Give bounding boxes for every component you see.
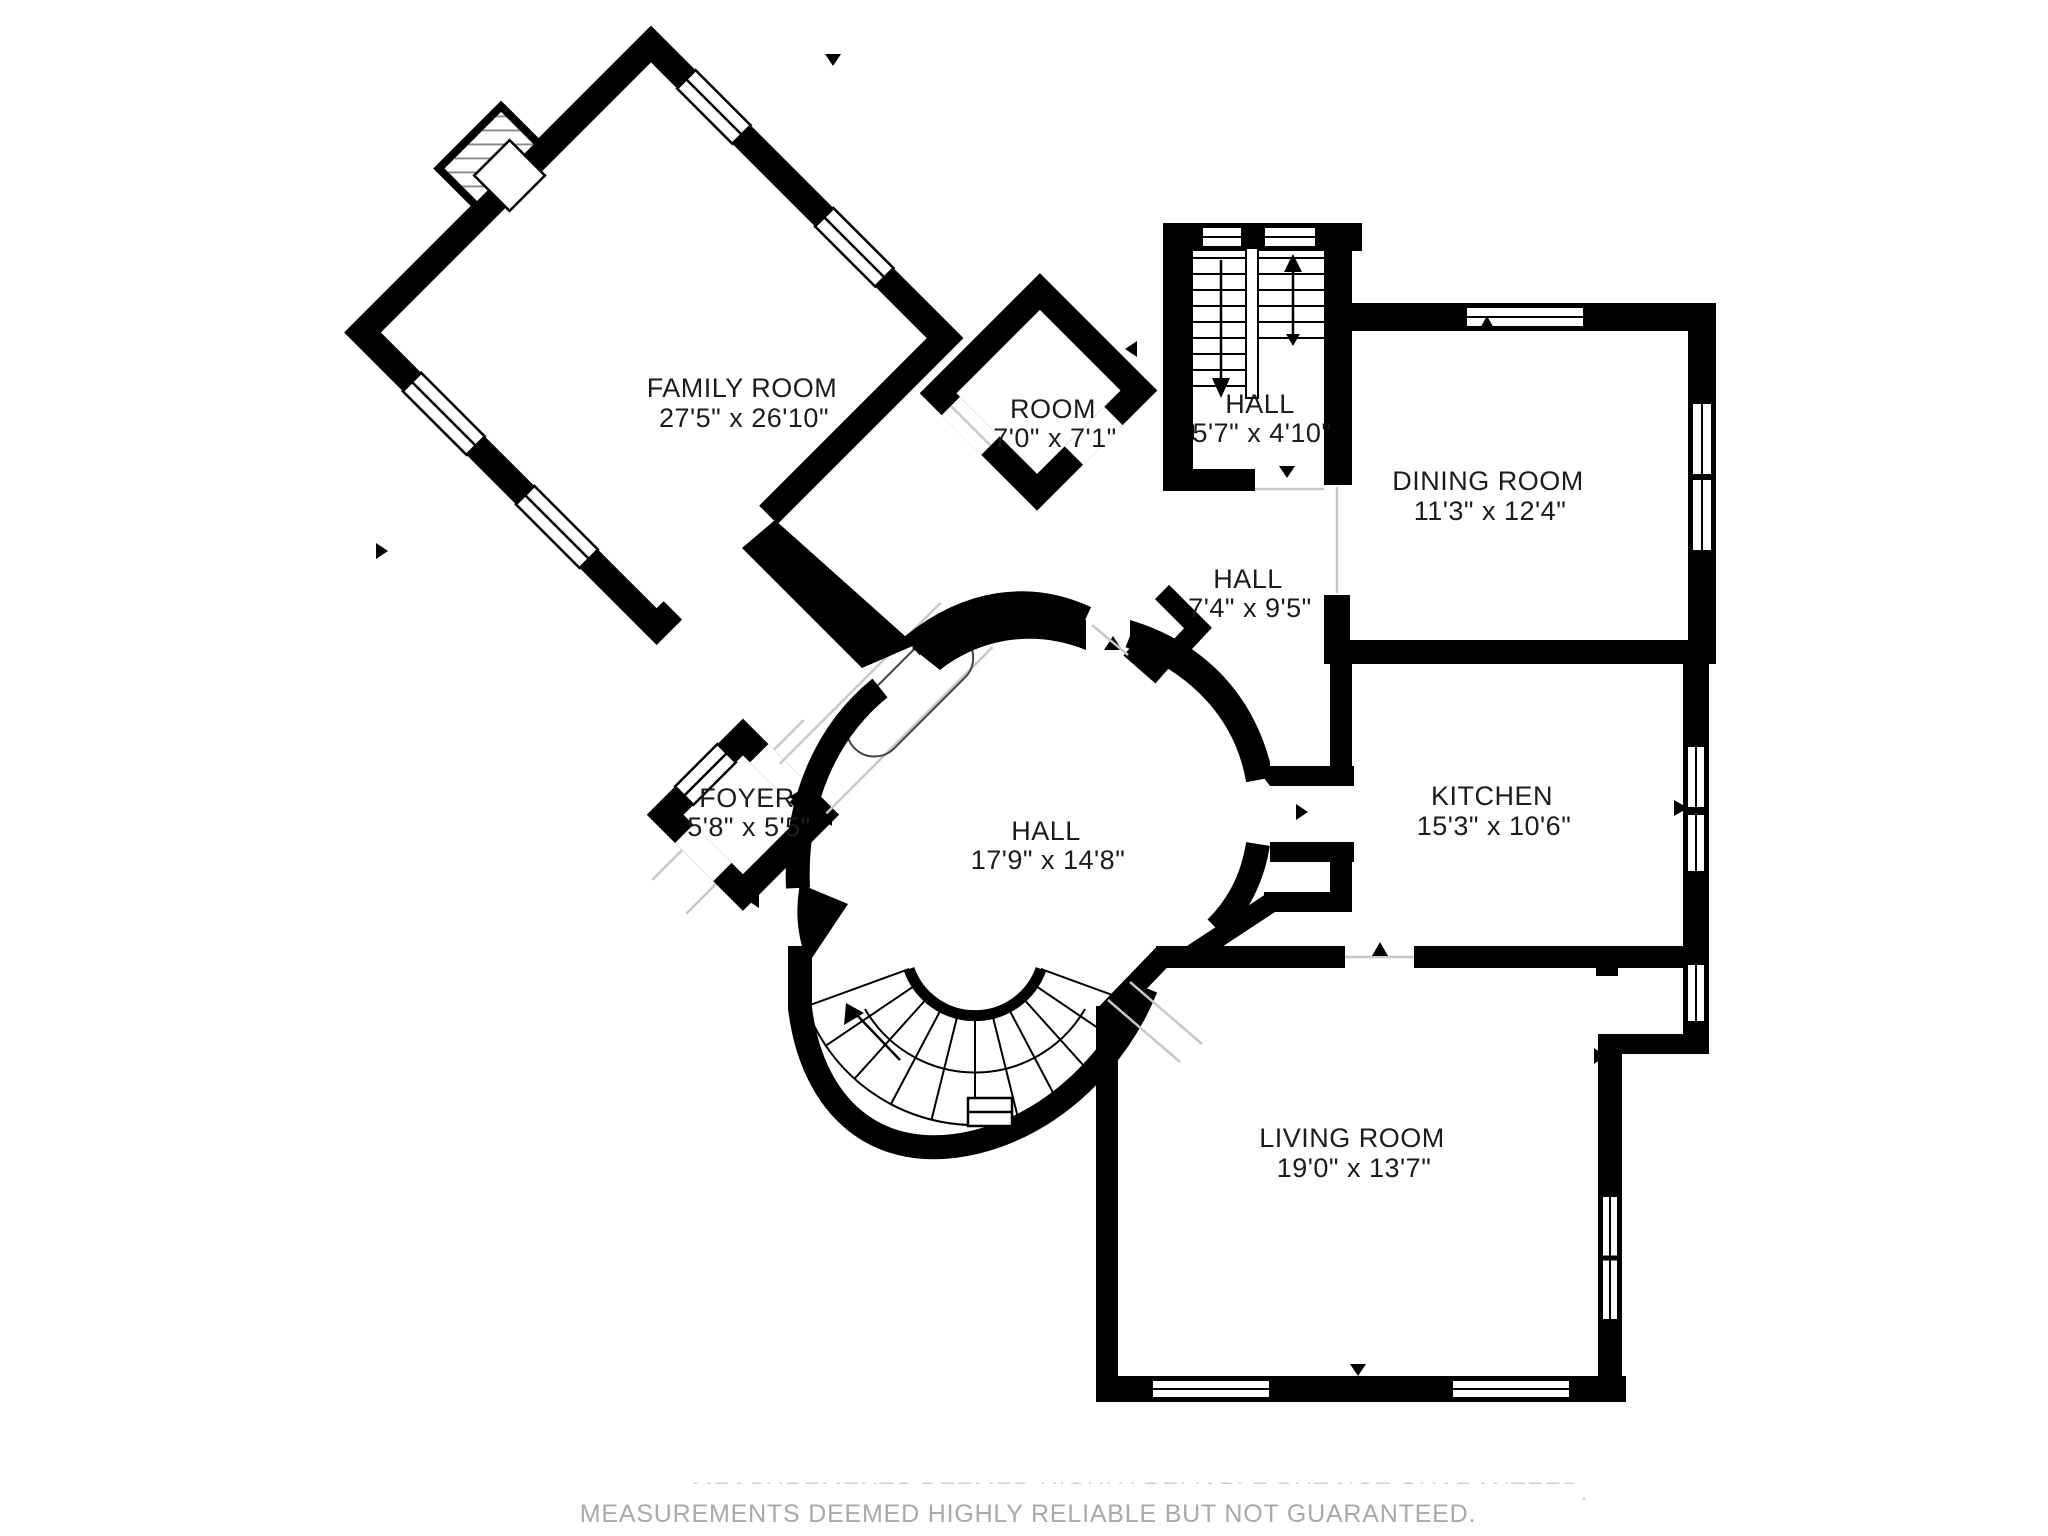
central-hall-dims: 17'9" x 14'8"	[971, 845, 1126, 875]
floor-plan: FAMILY ROOM 27'5" x 26'10" ROOM 7'0" x 7…	[0, 0, 2048, 1536]
upper-hall-label: HALL	[1213, 564, 1283, 594]
window	[1264, 227, 1316, 247]
stair-hall-label: HALL	[1225, 389, 1295, 419]
arrow-kitchen-living	[1372, 942, 1388, 956]
living-room-dims: 19'0" x 13'7"	[1277, 1153, 1432, 1183]
family-room-dims: 27'5" x 26'10"	[659, 403, 829, 433]
kitchen-label: KITCHEN	[1431, 781, 1553, 811]
disclaimer-area: MEASUREMENTS DEEMED HIGHLY RELIABLE BUT …	[520, 1478, 1588, 1536]
room-dims: 7'0" x 7'1"	[993, 423, 1117, 453]
dining-room-dims: 11'3" x 12'4"	[1414, 496, 1567, 526]
tick-room	[1125, 341, 1137, 357]
window	[1687, 814, 1705, 872]
window	[1687, 964, 1705, 1022]
arrow-stairhall-down	[1279, 466, 1295, 478]
curved-staircase	[806, 969, 1144, 1126]
window	[1687, 746, 1705, 808]
window	[1152, 1380, 1270, 1398]
tick-family-left	[376, 543, 388, 559]
foyer-dims: 5'8" x 5'5"	[687, 812, 811, 842]
family-room-walls	[264, 0, 964, 646]
arrow-living-bottom	[1350, 1364, 1366, 1376]
arrow-hall-east	[1296, 804, 1308, 820]
disclaimer-text: MEASUREMENTS DEEMED HIGHLY RELIABLE BUT …	[580, 1500, 1477, 1528]
central-hall-label: HALL	[1011, 816, 1081, 846]
stair-up-arrow	[1284, 254, 1302, 272]
dining-room-label: DINING ROOM	[1392, 466, 1584, 496]
stair-hall-dims: 5'7" x 4'10"	[1192, 418, 1331, 448]
upper-hall-dims: 7'4" x 9'5"	[1188, 593, 1312, 623]
diagonal-wing	[145, 0, 1196, 935]
tick-family-top	[825, 54, 841, 66]
floor-plan-canvas: FAMILY ROOM 27'5" x 26'10" ROOM 7'0" x 7…	[0, 0, 2048, 1536]
window	[1692, 403, 1712, 551]
window	[1602, 1196, 1618, 1320]
room-label: ROOM	[1010, 394, 1096, 424]
kitchen-dims: 15'3" x 10'6"	[1417, 811, 1572, 841]
foyer-label: FOYER	[699, 783, 795, 813]
window	[1202, 227, 1242, 247]
family-room-label: FAMILY ROOM	[647, 373, 838, 403]
funnel-opening-line	[1092, 625, 1128, 655]
window	[1452, 1380, 1570, 1398]
stair-arrow-base	[1286, 334, 1300, 346]
living-room-label: LIVING ROOM	[1259, 1123, 1445, 1153]
